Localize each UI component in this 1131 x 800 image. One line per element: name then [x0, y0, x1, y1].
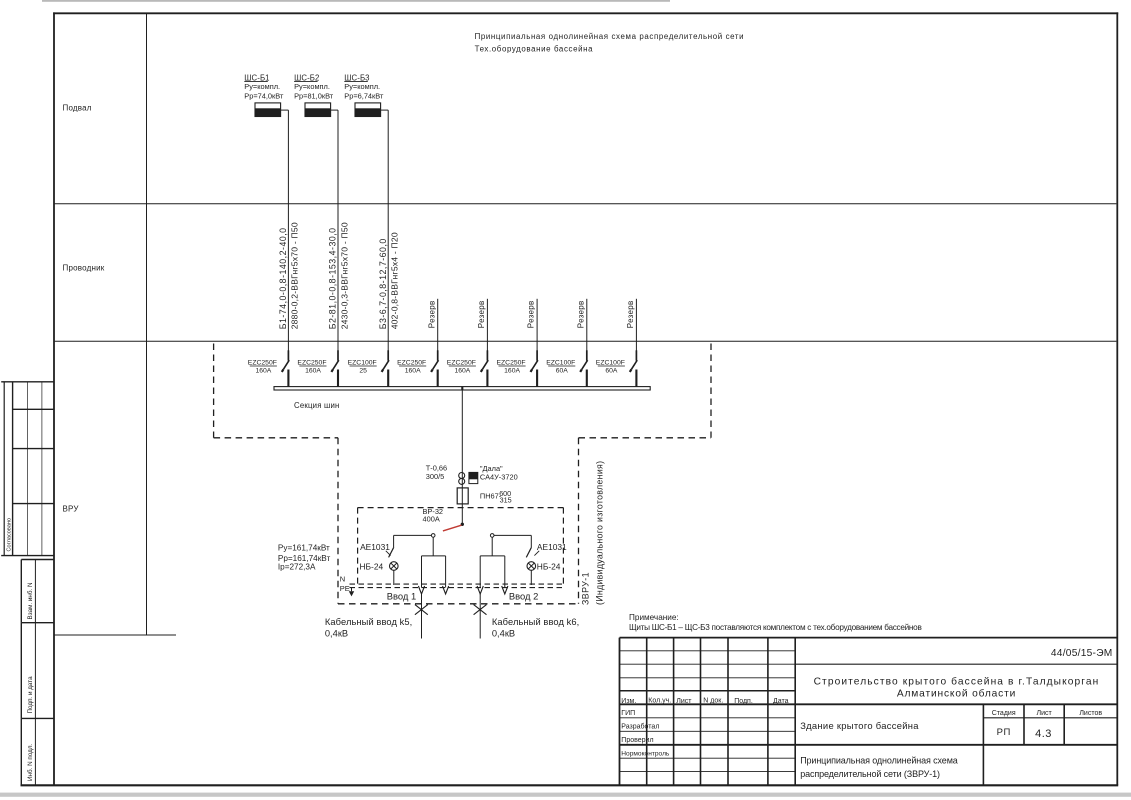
svg-text:2430-0,3-ВВГнг5х70 - П50: 2430-0,3-ВВГнг5х70 - П50 [339, 222, 349, 329]
svg-text:распределительной сети (ЗВРУ: распределительной сети (ЗВРУ-1) [800, 769, 940, 779]
svg-text:Б2-81,0-0,8-153,4-30,0: Б2-81,0-0,8-153,4-30,0 [328, 227, 338, 329]
svg-text:РП: РП [997, 727, 1011, 738]
svg-text:Стадия: Стадия [992, 710, 1016, 717]
svg-text:ГИП: ГИП [621, 710, 635, 717]
svg-text:Взам. инб. N: Взам. инб. N [26, 582, 34, 620]
svg-text:(Индивидуального изготовления: (Индивидуального изготовления) [595, 461, 605, 605]
svg-text:Б3-6,7-0,8-12,7-60,0: Б3-6,7-0,8-12,7-60,0 [378, 238, 388, 329]
svg-text:Алматинской области: Алматинской области [897, 687, 1016, 699]
svg-text:ЗВРУ-1: ЗВРУ-1 [581, 572, 591, 605]
svg-text:Строительство крытого бассей: Строительство крытого бассейна в г.Талды… [814, 675, 1100, 687]
svg-text:Iр=272,3А: Iр=272,3А [278, 563, 316, 572]
svg-text:Здание крытого бассейна: Здание крытого бассейна [800, 720, 919, 731]
svg-text:Кол.уч.: Кол.уч. [648, 698, 671, 705]
svg-text:PE: PE [340, 584, 350, 593]
svg-text:Резерв: Резерв [427, 300, 436, 328]
svg-text:4.3: 4.3 [1035, 728, 1052, 740]
svg-text:160A: 160A [405, 368, 421, 375]
svg-text:Изм.: Изм. [621, 698, 636, 705]
svg-text:Ру=компл.: Ру=компл. [244, 82, 280, 91]
svg-text:0,4кВ: 0,4кВ [492, 628, 515, 638]
svg-text:ШС-Б3: ШС-Б3 [344, 73, 369, 82]
svg-text:СА4У-3720: СА4У-3720 [480, 473, 518, 482]
svg-text:Примечание:: Примечание: [629, 613, 679, 622]
svg-text:Щиты ШС-Б1 – ЩС-Б3 поставл: Щиты ШС-Б1 – ЩС-Б3 поставляются комплект… [629, 623, 922, 632]
svg-text:Рр=81,0кВт: Рр=81,0кВт [294, 91, 334, 100]
svg-text:НБ-24: НБ-24 [360, 561, 384, 571]
svg-text:Б1-74,0-0,8-140,2-40,0: Б1-74,0-0,8-140,2-40,0 [278, 227, 288, 329]
svg-text:Дата: Дата [773, 698, 789, 705]
svg-text:Подп.: Подп. [734, 698, 753, 705]
svg-text:Резерв: Резерв [576, 300, 585, 328]
svg-text:300/5: 300/5 [426, 472, 445, 481]
svg-text:Ру=компл.: Ру=компл. [294, 82, 330, 91]
svg-text:60A: 60A [605, 368, 618, 375]
svg-text:"Дала": "Дала" [480, 464, 503, 473]
svg-text:Листов: Листов [1079, 710, 1102, 717]
svg-text:160A: 160A [305, 368, 321, 375]
svg-text:2880-0,2-ВВГнг5х70 - П50: 2880-0,2-ВВГнг5х70 - П50 [290, 222, 300, 329]
svg-text:44/05/15-ЭМ: 44/05/15-ЭМ [1051, 648, 1113, 659]
svg-text:Ру=161,74кВт: Ру=161,74кВт [278, 543, 330, 552]
svg-text:Согласовано: Согласовано [7, 518, 13, 552]
svg-text:Рр=74,0кВт: Рр=74,0кВт [244, 91, 284, 100]
svg-text:ШС-Б2: ШС-Б2 [294, 73, 319, 82]
svg-text:АЕ1031: АЕ1031 [360, 542, 390, 552]
svg-text:60A: 60A [556, 368, 569, 375]
svg-text:НБ-24: НБ-24 [537, 561, 561, 571]
svg-text:Принципиальная однолинейная: Принципиальная однолинейная схема распре… [475, 32, 745, 41]
svg-text:Проводник: Проводник [63, 264, 105, 273]
svg-text:Разработал: Разработал [621, 722, 659, 730]
svg-text:Лист: Лист [1036, 710, 1052, 717]
svg-text:Кабельный ввод k6,: Кабельный ввод k6, [492, 617, 579, 627]
svg-text:160A: 160A [255, 368, 271, 375]
svg-text:Тех.оборудование бассейна: Тех.оборудование бассейна [475, 44, 593, 53]
svg-text:315: 315 [500, 496, 512, 505]
svg-text:Кабельный ввод k5,: Кабельный ввод k5, [325, 617, 412, 627]
svg-text:Подп. и дата: Подп. и дата [27, 676, 34, 714]
svg-text:ШС-Б1: ШС-Б1 [244, 73, 269, 82]
svg-text:N док.: N док. [703, 698, 723, 705]
svg-text:Ввод 1: Ввод 1 [387, 590, 416, 601]
svg-text:402-0,8-ВВГнг5х4 - П20: 402-0,8-ВВГнг5х4 - П20 [390, 232, 400, 329]
svg-text:25: 25 [359, 368, 367, 375]
svg-text:Нормоконтроль: Нормоконтроль [621, 750, 670, 757]
svg-text:Принципиальная однолинейная: Принципиальная однолинейная схема [800, 755, 958, 765]
svg-text:Рр=6,74кВт: Рр=6,74кВт [344, 91, 384, 100]
svg-text:АЕ1031: АЕ1031 [537, 542, 567, 552]
svg-text:160A: 160A [504, 368, 520, 375]
svg-text:160A: 160A [454, 368, 470, 375]
svg-text:Ввод 2: Ввод 2 [509, 590, 538, 601]
svg-text:Инб. N подл.: Инб. N подл. [26, 743, 34, 781]
svg-text:Подвал: Подвал [63, 104, 92, 113]
svg-text:0,4кВ: 0,4кВ [325, 628, 348, 638]
svg-text:Резерв: Резерв [626, 300, 635, 328]
svg-text:Резерв: Резерв [527, 300, 536, 328]
svg-text:Секция шин: Секция шин [294, 401, 340, 410]
svg-text:Ру=компл.: Ру=компл. [344, 82, 380, 91]
svg-text:N: N [340, 574, 345, 583]
svg-text:Лист: Лист [676, 698, 692, 705]
svg-text:400А: 400А [423, 514, 440, 523]
svg-text:Проверил: Проверил [621, 737, 653, 744]
svg-text:Резерв: Резерв [477, 300, 486, 328]
svg-text:ВРУ: ВРУ [63, 505, 80, 514]
